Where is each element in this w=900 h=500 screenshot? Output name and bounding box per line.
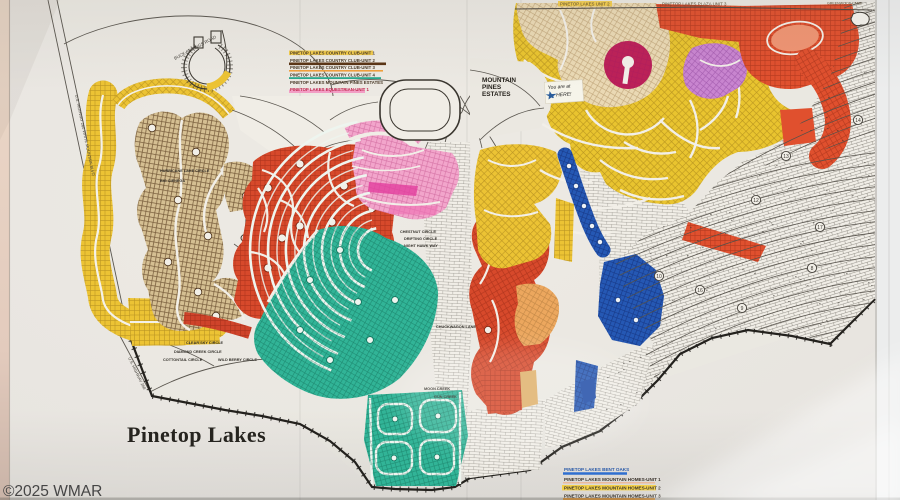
svg-text:NIGHT HAWK WAY: NIGHT HAWK WAY [404,244,438,248]
svg-text:ESTATES: ESTATES [482,91,511,98]
svg-text:14: 14 [855,118,861,124]
svg-text:12: 12 [753,198,759,204]
svg-text:13: 13 [783,154,789,160]
svg-text:CHESTNUT CIRCLE: CHESTNUT CIRCLE [400,230,436,234]
svg-text:CLEAR SKY CIRCLE: CLEAR SKY CIRCLE [186,341,224,345]
svg-text:WILD BERRY CIRCLE: WILD BERRY CIRCLE [218,358,257,362]
svg-text:16: 16 [697,288,703,294]
svg-text:PINETOP LAKES MOUNTAIN HOMES-U: PINETOP LAKES MOUNTAIN HOMES-UNIT 2 [564,486,661,491]
svg-text:Pinetop Lakes: Pinetop Lakes [127,422,266,447]
svg-text:8: 8 [811,266,814,272]
svg-text:9: 9 [741,306,744,312]
svg-text:10: 10 [656,274,662,280]
svg-text:DRIFTING CIRCLE: DRIFTING CIRCLE [404,237,438,241]
svg-text:©2025 WMAR: ©2025 WMAR [3,483,102,500]
svg-text:17: 17 [817,225,823,231]
svg-text:PINETOP LAKES MOUNTAIN HOMES-U: PINETOP LAKES MOUNTAIN HOMES-UNIT 1 [564,477,661,482]
svg-text:PINETOP LAKES BENT OAKS: PINETOP LAKES BENT OAKS [564,467,629,472]
svg-text:BIG CIENEGA: BIG CIENEGA [160,179,185,183]
svg-text:DIAMOND CREEK CIRCLE: DIAMOND CREEK CIRCLE [174,350,222,354]
svg-text:HERE!: HERE! [556,91,572,98]
svg-text:HURRICANE LAKE CIRCLE: HURRICANE LAKE CIRCLE [160,169,210,173]
svg-text:COTTONTAIL CIRCLE: COTTONTAIL CIRCLE [163,358,203,362]
svg-text:CHUCKWAGON LANE: CHUCKWAGON LANE [436,325,476,329]
